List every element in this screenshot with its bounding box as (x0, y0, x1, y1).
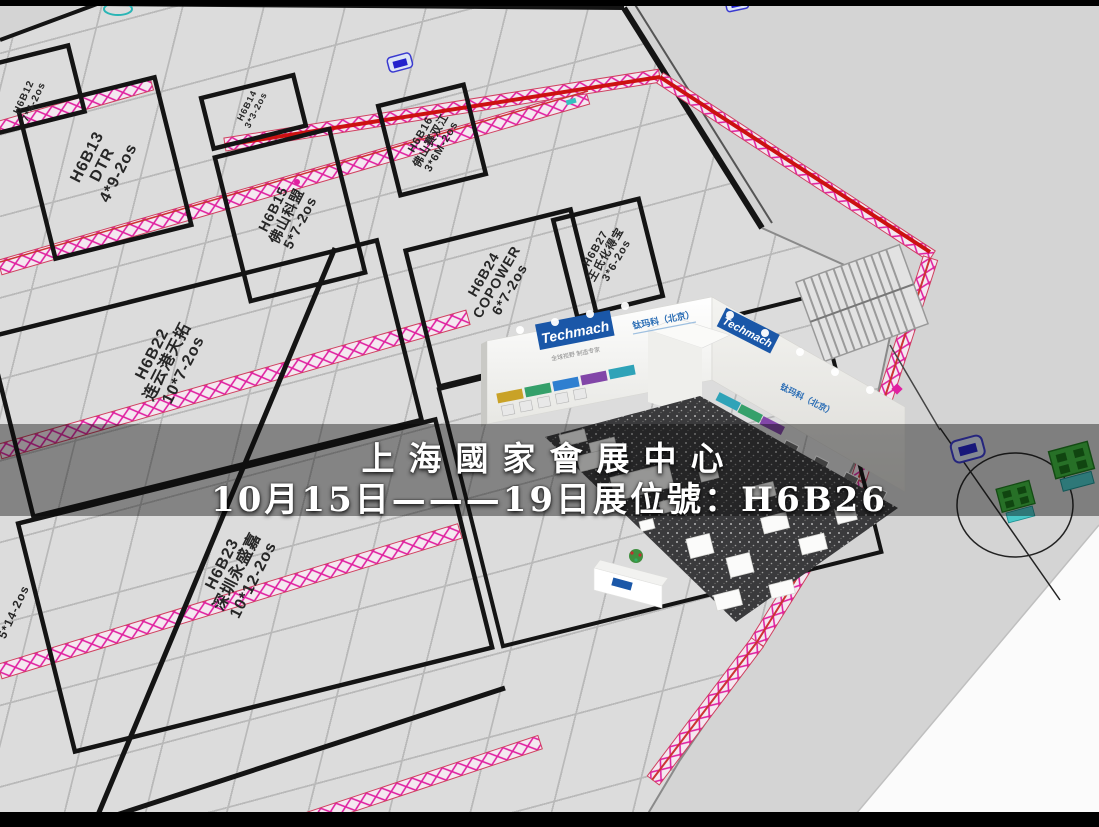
top-black-bar (0, 0, 1099, 6)
plan-linework: Techmach 全球视野 制造专家 钛玛科（北京） (0, 0, 1099, 827)
bottom-black-bar (0, 812, 1099, 827)
marker-dot-magenta (294, 179, 300, 185)
reception-desk (594, 549, 668, 608)
floorplan-scene: Techmach 全球视野 制造专家 钛玛科（北京） (0, 0, 1099, 827)
date-booth-number: 10月15日———19日展位號：H6B26 (0, 472, 1099, 521)
utility-icon-1 (386, 52, 413, 73)
